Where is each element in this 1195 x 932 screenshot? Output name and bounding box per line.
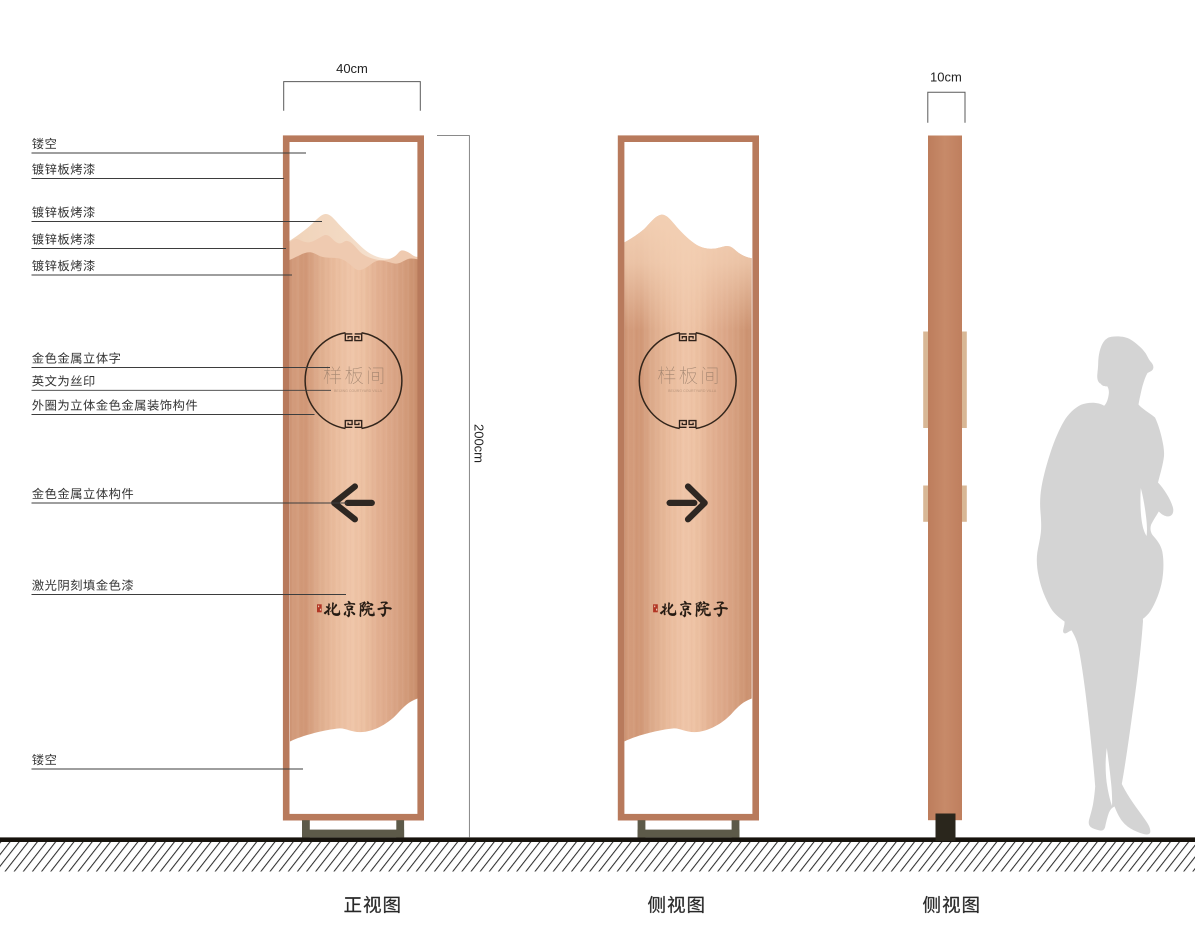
svg-text:10cm: 10cm [930,70,962,85]
svg-text:200cm: 200cm [472,424,487,463]
svg-text:BEIJING COURTYARD VILLA: BEIJING COURTYARD VILLA [668,389,717,393]
svg-text:40cm: 40cm [336,61,368,76]
svg-text:BEIJING COURTYARD VILLA: BEIJING COURTYARD VILLA [334,389,383,393]
